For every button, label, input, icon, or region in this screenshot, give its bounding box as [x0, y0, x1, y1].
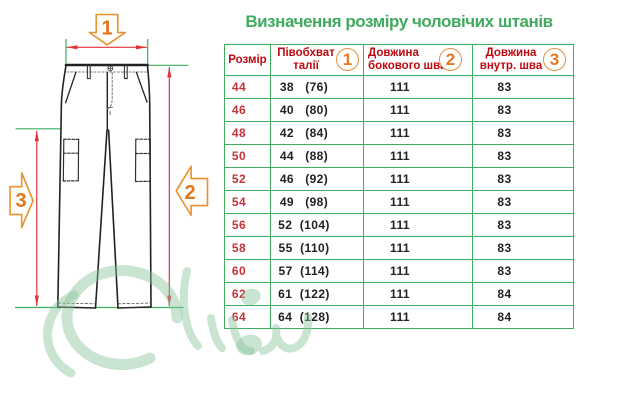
- svg-text:1: 1: [101, 18, 112, 40]
- svg-text:3: 3: [15, 190, 26, 212]
- svg-text:2: 2: [184, 182, 195, 204]
